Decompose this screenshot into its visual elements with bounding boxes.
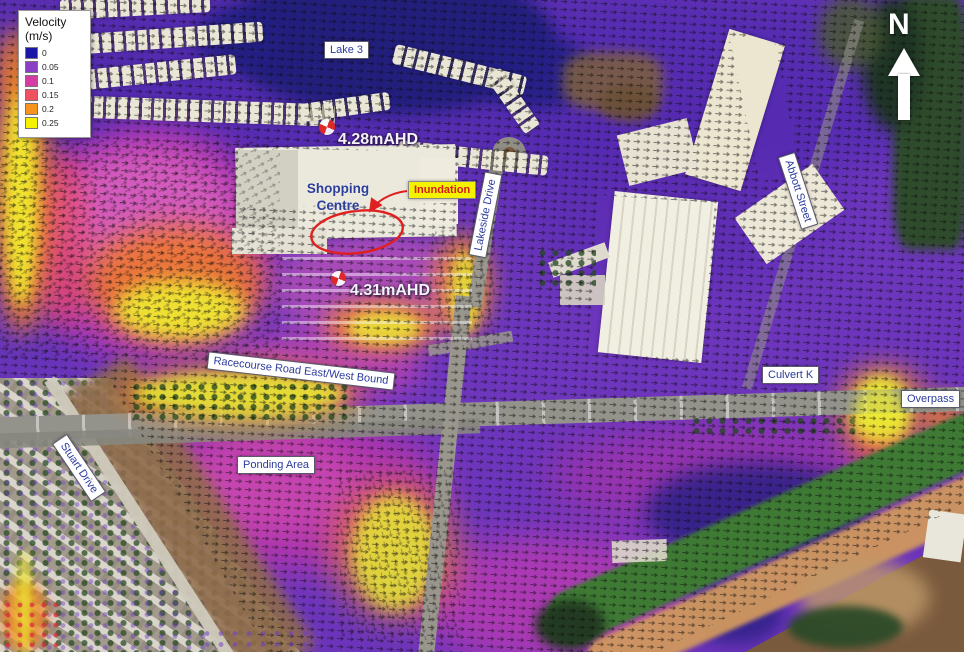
legend-swatch xyxy=(25,61,38,73)
annotation-overlay xyxy=(0,0,964,652)
label-lake-3: Lake 3 xyxy=(324,41,369,59)
legend-entry: 0.15 xyxy=(25,89,85,101)
flood-velocity-map: Lake 3 4.28mAHD 4.31mAHD Shopping Centre… xyxy=(0,0,964,652)
legend-value: 0.1 xyxy=(42,76,54,86)
legend-value: 0 xyxy=(42,48,47,58)
north-label: N xyxy=(888,8,910,42)
label-gauge-upper: 4.28mAHD xyxy=(338,131,418,149)
label-ponding-area: Ponding Area xyxy=(237,456,315,474)
legend-value: 0.05 xyxy=(42,62,59,72)
label-culvert-k: Culvert K xyxy=(762,366,819,384)
legend-swatch xyxy=(25,89,38,101)
legend-units: (m/s) xyxy=(25,29,85,43)
legend-title: Velocity xyxy=(25,15,85,29)
legend-value: 0.2 xyxy=(42,104,54,114)
legend-entry: 0.2 xyxy=(25,103,85,115)
velocity-legend: Velocity (m/s) 0 0.05 0.1 0.15 0.2 0.25 xyxy=(18,10,91,138)
label-shopping-centre: Shopping Centre xyxy=(300,180,376,214)
legend-entry: 0.25 xyxy=(25,117,85,129)
legend-swatch xyxy=(25,103,38,115)
legend-swatch xyxy=(25,117,38,129)
gauge-marker-upper xyxy=(319,119,335,135)
label-inundation: Inundation xyxy=(408,181,476,199)
label-overpass: Overpass xyxy=(901,390,960,408)
label-gauge-lower: 4.31mAHD xyxy=(350,282,430,300)
legend-swatch xyxy=(25,47,38,59)
north-arrow-head xyxy=(888,48,920,76)
legend-swatch xyxy=(25,75,38,87)
legend-entry: 0.1 xyxy=(25,75,85,87)
legend-value: 0.25 xyxy=(42,118,59,128)
legend-entry: 0 xyxy=(25,47,85,59)
legend-value: 0.15 xyxy=(42,90,59,100)
gauge-marker-lower xyxy=(331,271,346,286)
legend-entry: 0.05 xyxy=(25,61,85,73)
north-arrow-stem xyxy=(898,74,910,120)
